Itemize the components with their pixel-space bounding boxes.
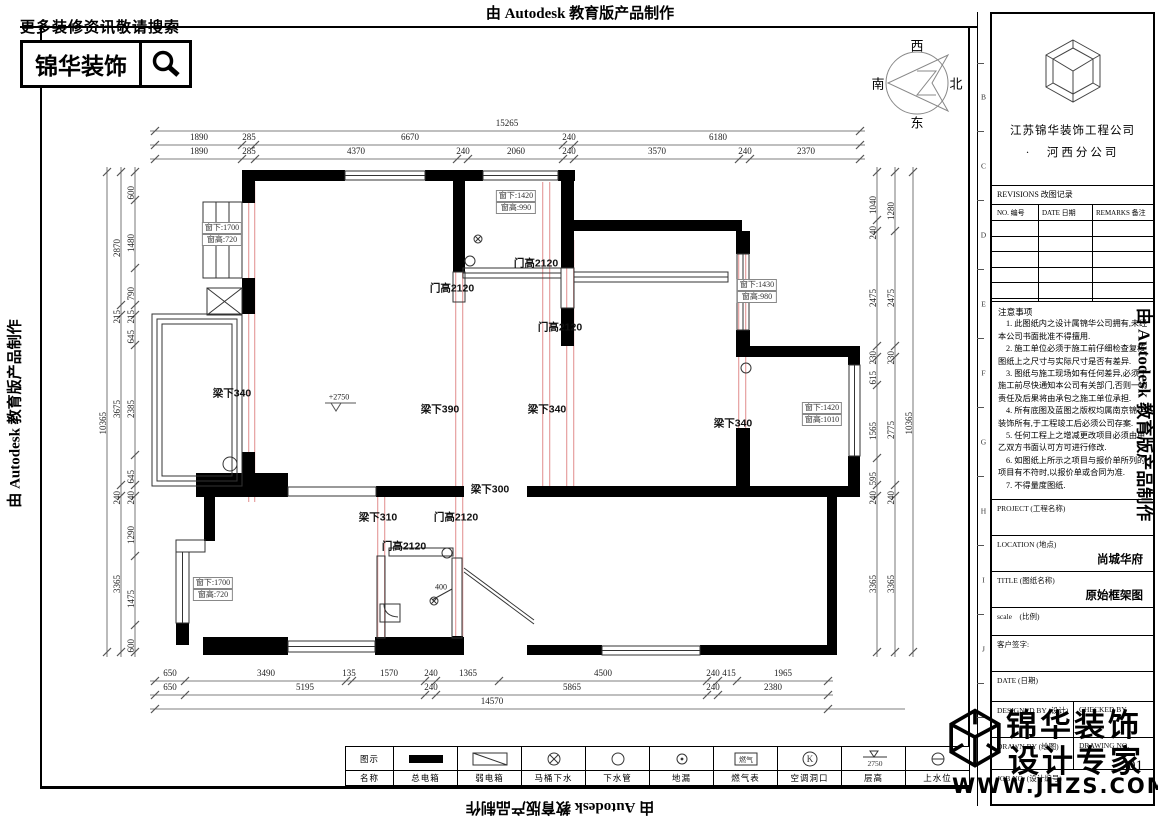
legend-item: 下水管 [586,747,650,785]
dim-label: 2775 [886,421,896,439]
legend-item: 弱电箱 [458,747,522,785]
drawing-sheet: 由 Autodesk 教育版产品制作 由 Autodesk 教育版产品制作 由 … [0,0,1158,817]
dim-label: 3365 [112,575,122,593]
dim-label: 600 [126,639,136,653]
beam-door-label: 梁下300 [471,482,510,497]
brand-stamp: 锦华装饰 设计专家 WWW.JHZS.COM [944,698,1158,803]
dim-label: 3490 [257,668,275,678]
dim-label: 1290 [126,526,136,544]
legend-item-name: 弱电箱 [458,771,521,785]
dim-label: 3365 [886,575,896,593]
svg-text:K: K [806,754,813,764]
dim-label: 600 [126,186,136,200]
dim-label: 230 [868,351,878,365]
dim-label: 240 [112,491,122,505]
autodesk-banner-right: 由 Autodesk 教育版产品制作 [1134,265,1158,565]
svg-text:燃气: 燃气 [739,755,753,764]
dim-label: 645 [126,470,136,484]
search-tagline: 更多装修资讯敬请搜索 [20,16,180,37]
legend-symbol-circle-cross [522,747,585,771]
dim-label: 14570 [481,696,504,706]
dim-label: 645 [126,330,136,344]
legend-table: 图示 名称 总电箱 弱电箱 马桶下水 下水管 地漏燃气 燃气表K 空调洞口275… [345,746,970,786]
legend-item: 2750 层高 [842,747,906,785]
legend-symbol-circle-k: K [778,747,841,771]
dim-label: 790 [126,287,136,301]
dim-label: 15265 [496,118,519,128]
dim-label: 240 [562,146,576,156]
small-dim-label: +2750 [329,393,350,402]
dim-label: 2475 [868,289,878,307]
dim-label: 230 [886,351,896,365]
dim-label: 1890 [190,132,208,142]
legend-symbol-row-label: 图示 [346,747,393,771]
dim-label: 3570 [648,146,666,156]
dim-label: 3365 [868,575,878,593]
dim-label: 240 [424,682,438,692]
dim-label: 240 [886,491,896,505]
window-sill-label: 窗下:1700 [193,577,233,589]
beam-door-label: 门高2120 [514,256,558,271]
dim-label: 240 [738,146,752,156]
dim-label: 1040 [868,196,878,214]
svg-text:2750: 2750 [867,759,882,768]
dim-label: 615 [868,371,878,385]
legend-label-column: 图示 名称 [346,747,394,785]
window-height-label: 窗高:720 [193,589,233,601]
dim-label: 2870 [112,239,122,257]
dim-label: 135 [342,668,356,678]
stamp-cube-icon [944,706,1006,772]
dim-label: 10365 [98,412,108,435]
window-tag: 窗下:1430窗高:980 [737,279,777,303]
legend-symbol-level-triangle: 2750 [842,747,905,771]
legend-item: 燃气 燃气表 [714,747,778,785]
dim-label: 215 [126,310,136,324]
legend-item: K 空调洞口 [778,747,842,785]
window-sill-label: 窗下:1420 [496,190,536,202]
dim-label: 240 [424,668,438,678]
dim-label: 1570 [380,668,398,678]
dim-label: 240 [126,491,136,505]
magnifier-icon [142,43,189,85]
dim-label: 2060 [507,146,525,156]
dim-label: 5195 [296,682,314,692]
brand-name: 锦华装饰 [23,43,142,85]
window-tag: 窗下:1700窗高:720 [202,222,242,246]
dim-label: 650 [163,682,177,692]
dim-label: 1890 [190,146,208,156]
dim-label: 240 [868,491,878,505]
beam-door-label: 门高2120 [538,320,582,335]
dim-label: 1365 [459,668,477,678]
dim-label: 10365 [904,412,914,435]
dim-label: 595 [868,472,878,486]
dim-label: 2380 [764,682,782,692]
legend-item-name: 总电箱 [394,771,457,785]
dim-label: 285 [242,146,256,156]
dim-label: 1965 [774,668,792,678]
dim-label: 4500 [594,668,612,678]
dim-label: 3675 [112,400,122,418]
legend-item-name: 马桶下水 [522,771,585,785]
dim-label: 6180 [709,132,727,142]
window-height-label: 窗高:980 [737,291,777,303]
dim-label: 1475 [126,590,136,608]
window-sill-label: 窗下:1420 [802,402,842,414]
dim-label: 240 [456,146,470,156]
brand-search-box: 锦华装饰 [20,40,192,88]
beam-door-label: 门高2120 [430,281,474,296]
beam-door-label: 梁下340 [213,386,252,401]
dim-label: 240 [706,668,720,678]
dim-label: 240 [868,226,878,240]
small-dim-label: 400 [435,583,447,592]
beam-door-label: 梁下390 [421,402,460,417]
dim-label: 2370 [797,146,815,156]
dim-label: 5865 [563,682,581,692]
dim-label: 285 [242,132,256,142]
beam-door-label: 门高2120 [382,539,426,554]
legend-item-name: 地漏 [650,771,713,785]
legend-name-row-label: 名称 [346,771,393,785]
dim-label: 240 [562,132,576,142]
legend-item-name: 层高 [842,771,905,785]
window-height-label: 窗高:720 [202,234,242,246]
window-tag: 窗下:1700窗高:720 [193,577,233,601]
stamp-website: WWW.JHZS.COM [952,774,1158,798]
dim-label: 415 [722,668,736,678]
dim-label: 650 [163,668,177,678]
window-tag: 窗下:1420窗高:990 [496,190,536,214]
dim-label: 6670 [401,132,419,142]
dim-label: 1480 [126,234,136,252]
legend-item-name: 空调洞口 [778,771,841,785]
legend-item: 总电箱 [394,747,458,785]
dim-label: 1565 [868,422,878,440]
dim-label: 2385 [126,400,136,418]
beam-door-label: 梁下340 [714,416,753,431]
legend-item-name: 下水管 [586,771,649,785]
dim-label: 1280 [886,202,896,220]
legend-item: 马桶下水 [522,747,586,785]
dim-label: 4370 [347,146,365,156]
beam-door-label: 门高2120 [434,510,478,525]
plan-labels: 1526518902856670240618018902854370240206… [0,0,1158,817]
beam-door-label: 梁下340 [528,402,567,417]
window-height-label: 窗高:1010 [802,414,842,426]
window-height-label: 窗高:990 [496,202,536,214]
legend-symbol-circle [586,747,649,771]
window-tag: 窗下:1420窗高:1010 [802,402,842,426]
dim-label: 240 [706,682,720,692]
legend-symbol-gas-box: 燃气 [714,747,777,771]
window-sill-label: 窗下:1700 [202,222,242,234]
legend-item: 地漏 [650,747,714,785]
beam-door-label: 梁下310 [359,510,398,525]
dim-label: 2475 [886,289,896,307]
legend-item-name: 燃气表 [714,771,777,785]
dim-label: 215 [112,310,122,324]
window-sill-label: 窗下:1430 [737,279,777,291]
legend-symbol-filled-rect [394,747,457,771]
legend-symbol-diagonal-rect [458,747,521,771]
legend-symbol-circle-dot [650,747,713,771]
